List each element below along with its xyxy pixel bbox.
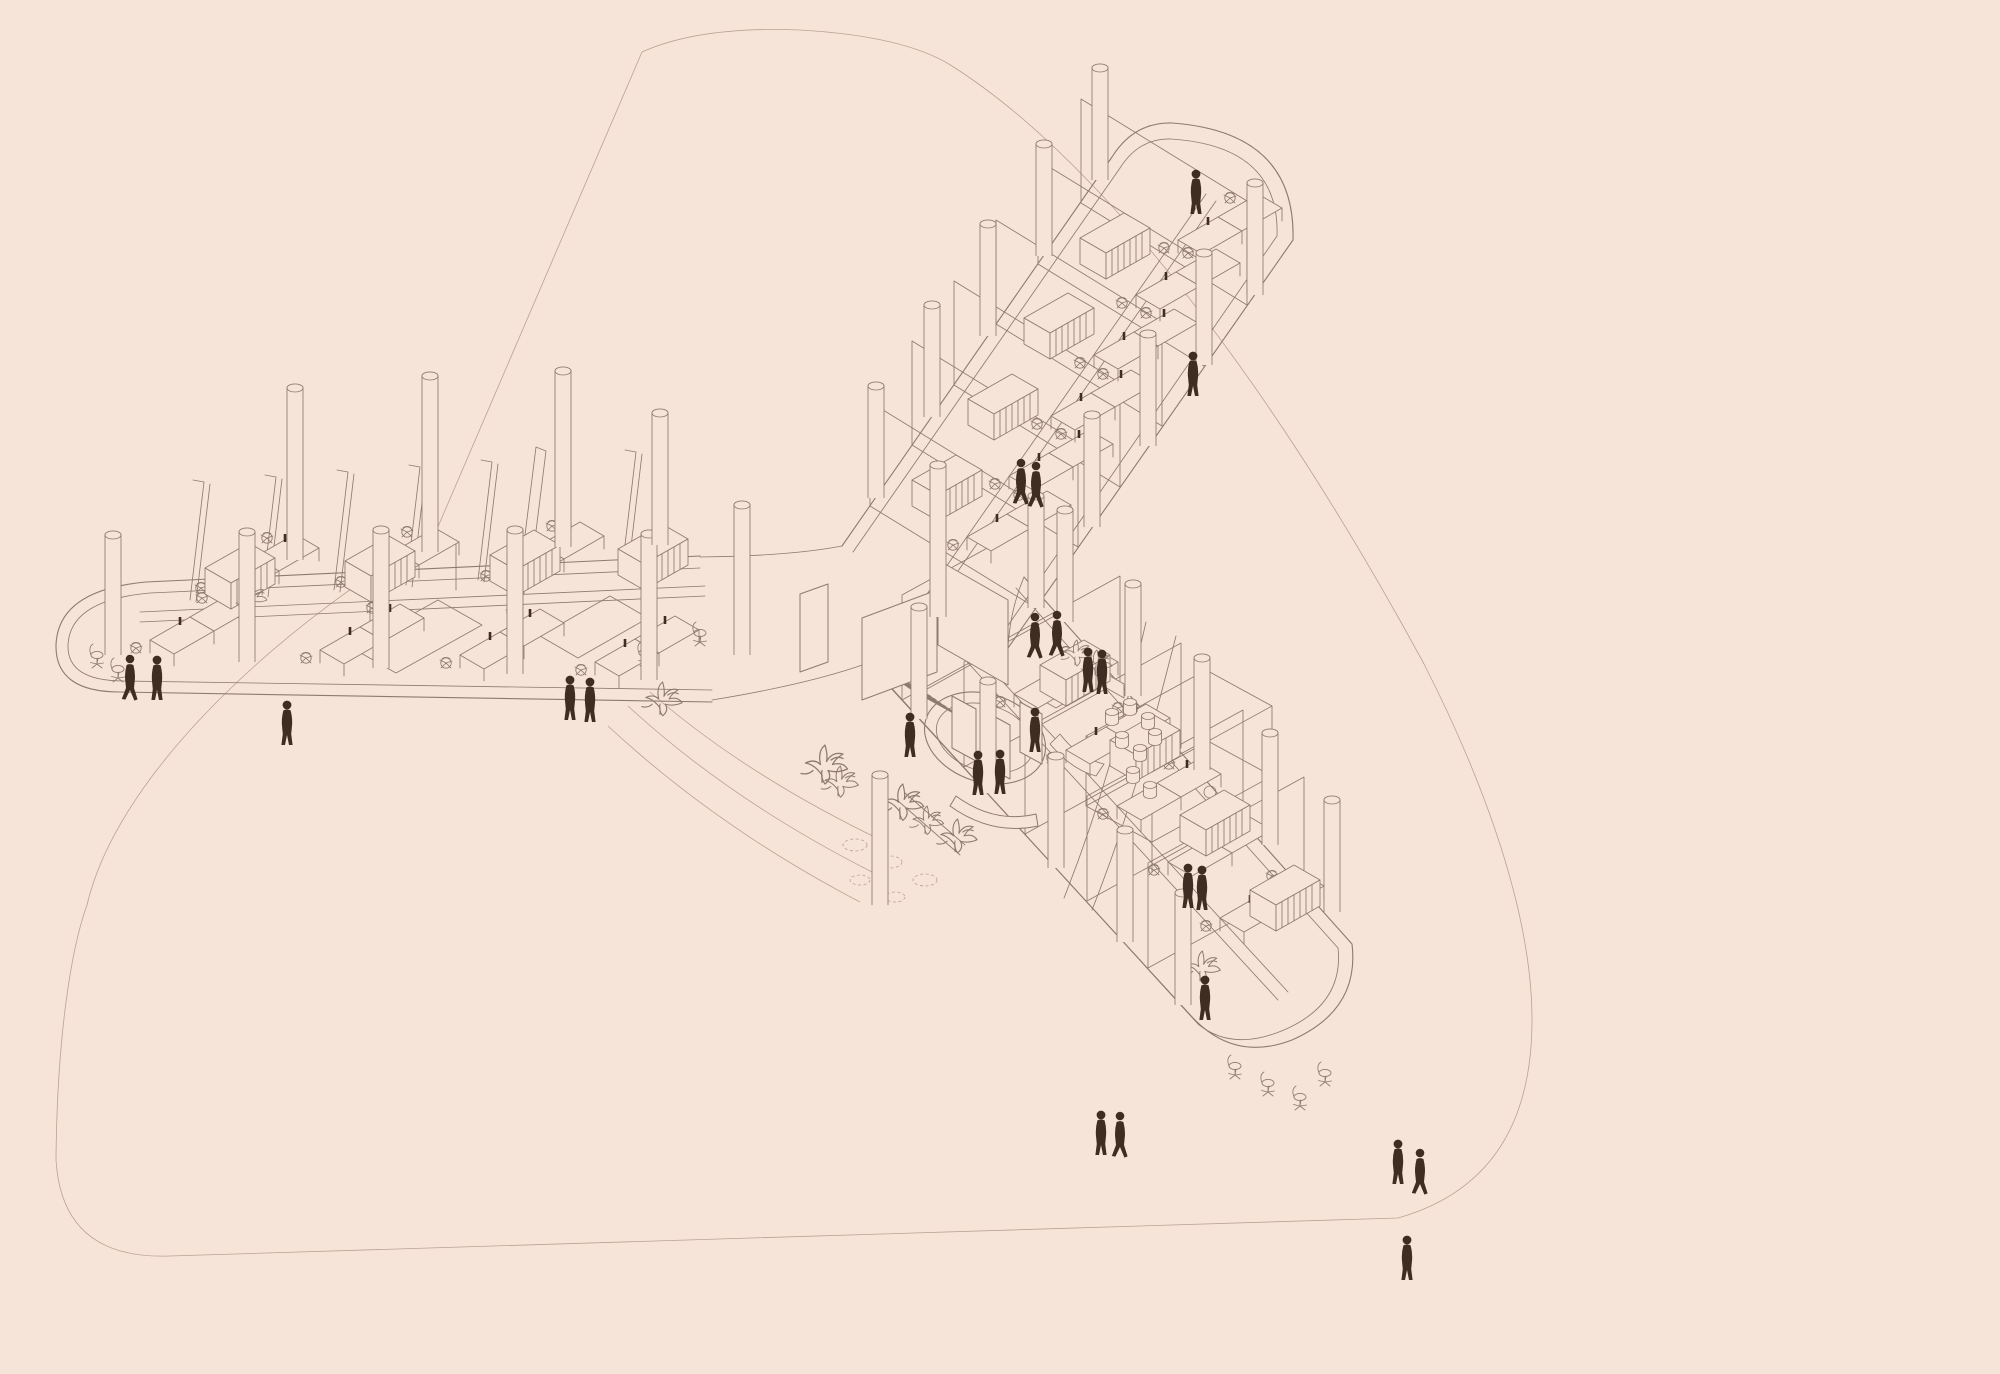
- shelves-layer: [205, 213, 1320, 931]
- axonometric-office-illustration: Axonometric wireframe drawing of a Y-sha…: [0, 0, 2000, 1374]
- people-layer: [122, 170, 1428, 1280]
- drawing-canvas: Axonometric wireframe drawing of a Y-sha…: [0, 0, 2000, 1374]
- central-hub: [800, 560, 1124, 855]
- site-boundary-outline: [56, 29, 1532, 1256]
- central-hub-ground: [608, 546, 1176, 910]
- chairs-layer: [90, 622, 1332, 1110]
- desks-layer: [130, 192, 1324, 944]
